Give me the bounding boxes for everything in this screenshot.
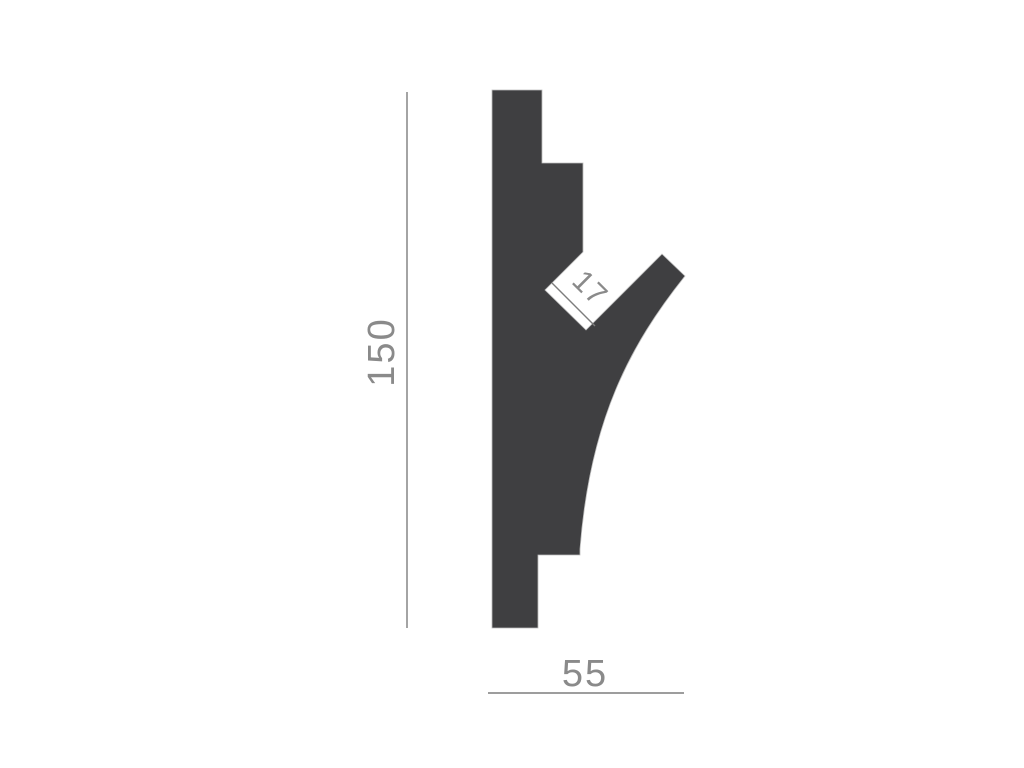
profile-diagram-svg: 150 55 17	[0, 0, 1024, 768]
slot-dimension-label: 17	[566, 264, 614, 312]
width-dimension-label: 55	[562, 653, 608, 695]
diagram-canvas: 150 55 17	[0, 0, 1024, 768]
height-dimension-label: 150	[361, 317, 403, 386]
profile-shape	[492, 90, 685, 628]
